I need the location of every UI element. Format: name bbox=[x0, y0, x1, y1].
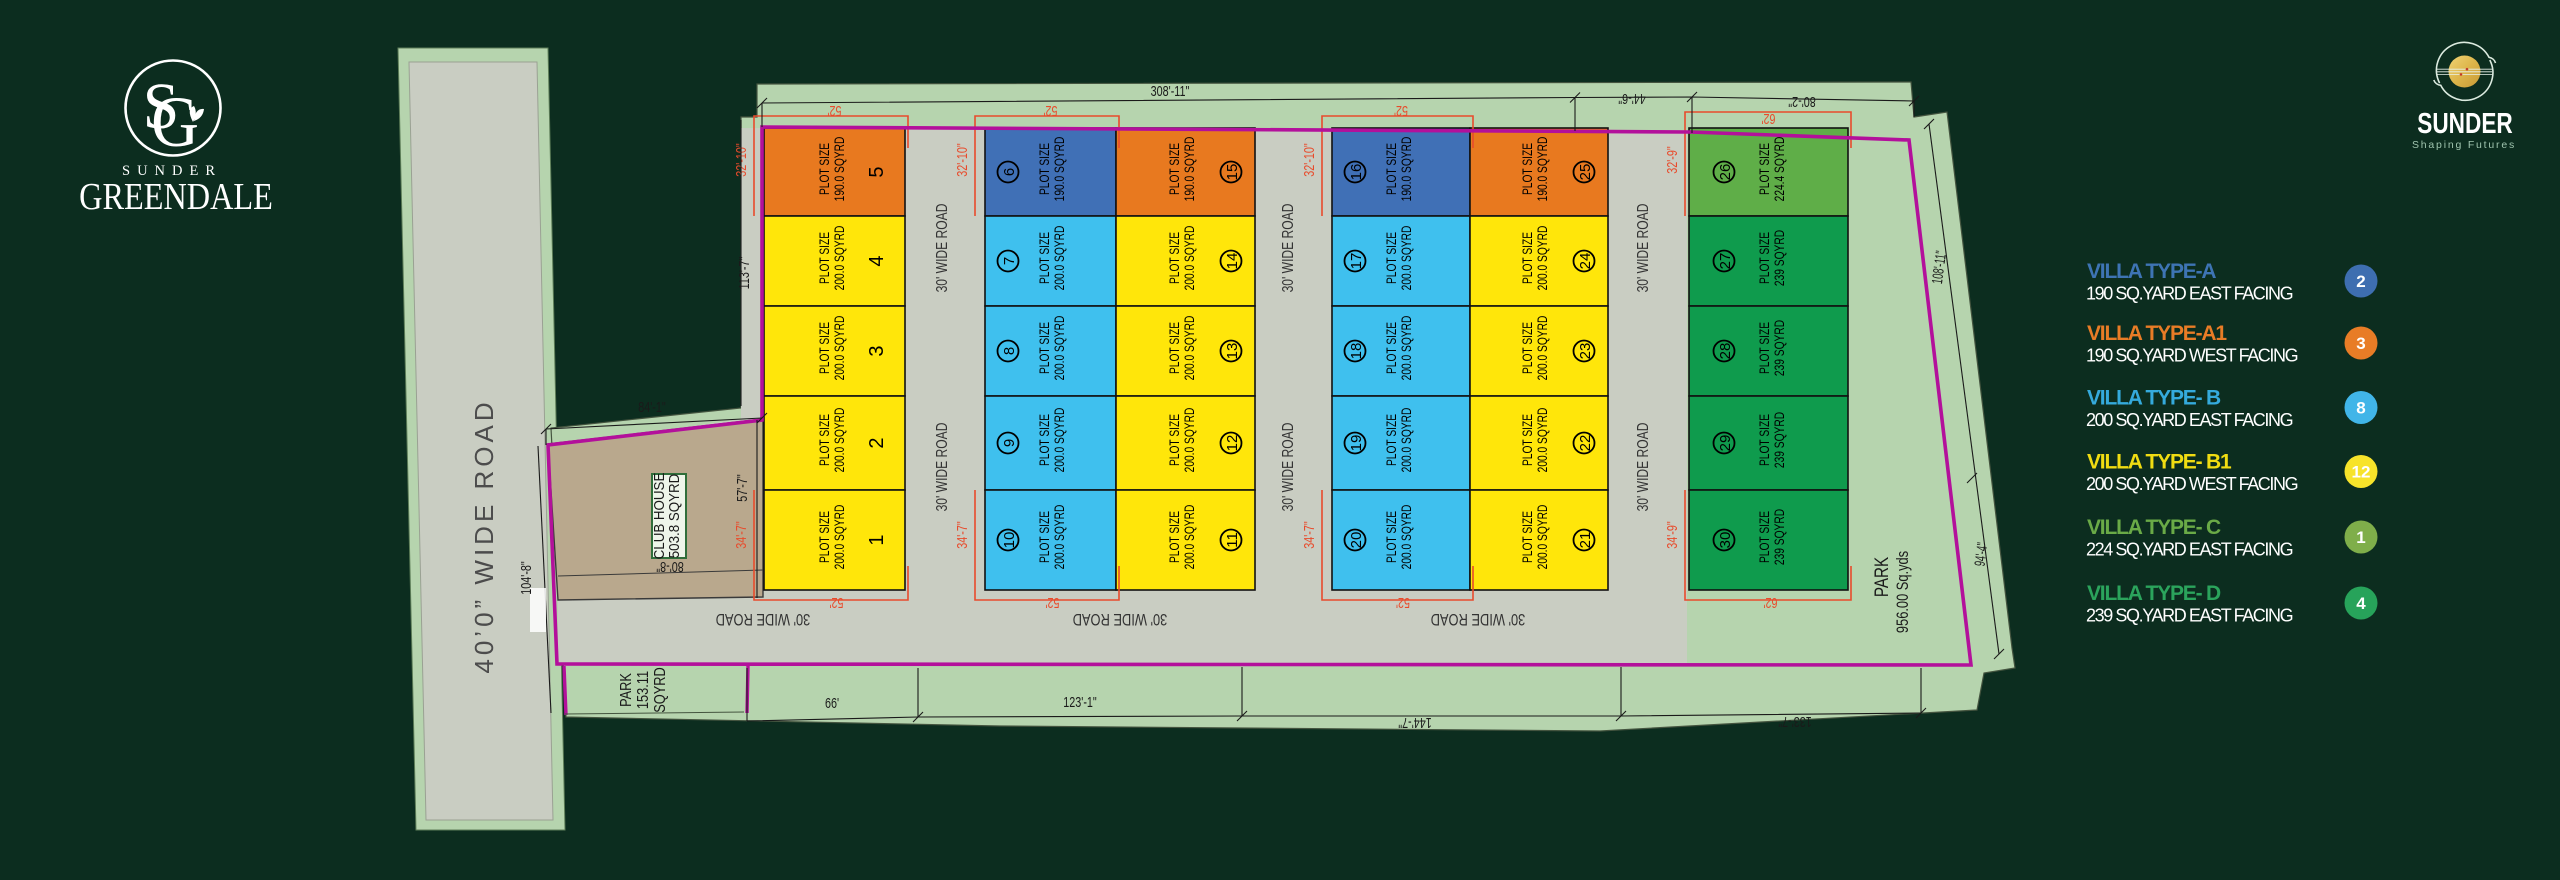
svg-text:239 SQYRD: 239 SQYRD bbox=[1771, 412, 1787, 468]
svg-text:9: 9 bbox=[1001, 439, 1018, 447]
svg-text:13: 13 bbox=[1224, 343, 1241, 360]
svg-text:200.0 SQYRD: 200.0 SQYRD bbox=[1051, 408, 1067, 473]
svg-text:200 SQ.YARD EAST FACING: 200 SQ.YARD EAST FACING bbox=[2086, 410, 2293, 430]
svg-text:80'-2": 80'-2" bbox=[1788, 94, 1816, 111]
svg-text:PLOT SIZE: PLOT SIZE bbox=[1166, 232, 1182, 284]
svg-text:PLOT SIZE: PLOT SIZE bbox=[816, 322, 832, 374]
svg-text:PLOT SIZE: PLOT SIZE bbox=[1166, 143, 1182, 195]
svg-text:PLOT SIZE: PLOT SIZE bbox=[1036, 322, 1052, 374]
svg-text:PLOT SIZE: PLOT SIZE bbox=[1383, 511, 1399, 563]
svg-text:15: 15 bbox=[1224, 164, 1241, 181]
svg-text:52': 52' bbox=[1043, 103, 1057, 120]
svg-text:25: 25 bbox=[1577, 164, 1594, 181]
svg-text:8: 8 bbox=[1001, 347, 1018, 355]
svg-text:30: 30 bbox=[1717, 532, 1734, 549]
svg-text:PLOT SIZE: PLOT SIZE bbox=[816, 143, 832, 195]
svg-text:20: 20 bbox=[1348, 532, 1365, 549]
svg-text:17: 17 bbox=[1348, 253, 1365, 270]
svg-text:224 SQ.YARD EAST FACING: 224 SQ.YARD EAST FACING bbox=[2086, 540, 2293, 560]
svg-text:30' WIDE ROAD: 30' WIDE ROAD bbox=[1634, 204, 1652, 293]
svg-text:239 SQ.YARD EAST FACING: 239 SQ.YARD EAST FACING bbox=[2086, 606, 2293, 626]
svg-text:PLOT SIZE: PLOT SIZE bbox=[1519, 232, 1535, 284]
svg-text:94'-4": 94'-4" bbox=[1971, 542, 1991, 568]
svg-text:34'-7": 34'-7" bbox=[953, 521, 970, 549]
svg-text:153.11: 153.11 bbox=[635, 671, 653, 709]
svg-text:190.0 SQYRD: 190.0 SQYRD bbox=[831, 137, 847, 202]
svg-text:200.0 SQYRD: 200.0 SQYRD bbox=[1534, 316, 1550, 381]
svg-text:200.0 SQYRD: 200.0 SQYRD bbox=[1181, 316, 1197, 381]
svg-text:24: 24 bbox=[1577, 253, 1594, 270]
svg-text:30' WIDE ROAD: 30' WIDE ROAD bbox=[1073, 610, 1168, 628]
svg-text:308'-11": 308'-11" bbox=[1151, 82, 1190, 99]
svg-text:PLOT SIZE: PLOT SIZE bbox=[1036, 232, 1052, 284]
svg-text:26: 26 bbox=[1717, 164, 1734, 181]
svg-text:21: 21 bbox=[1577, 532, 1594, 549]
svg-text:32'-10": 32'-10" bbox=[953, 143, 970, 177]
svg-text:200.0 SQYRD: 200.0 SQYRD bbox=[1398, 226, 1414, 291]
svg-text:200.0 SQYRD: 200.0 SQYRD bbox=[1398, 316, 1414, 381]
svg-text:PLOT SIZE: PLOT SIZE bbox=[1036, 511, 1052, 563]
svg-text:34'-7": 34'-7" bbox=[1300, 521, 1317, 549]
svg-text:28: 28 bbox=[1717, 343, 1734, 360]
svg-text:200.0 SQYRD: 200.0 SQYRD bbox=[831, 505, 847, 570]
svg-text:1: 1 bbox=[2356, 528, 2365, 547]
svg-text:123'-1": 123'-1" bbox=[1063, 693, 1097, 710]
svg-text:200.0 SQYRD: 200.0 SQYRD bbox=[831, 226, 847, 291]
svg-text:27: 27 bbox=[1717, 253, 1734, 270]
svg-text:2: 2 bbox=[2356, 272, 2365, 291]
svg-text:11: 11 bbox=[1224, 532, 1241, 548]
svg-text:200.0 SQYRD: 200.0 SQYRD bbox=[1051, 505, 1067, 570]
svg-text:40’0” WIDE ROAD: 40’0” WIDE ROAD bbox=[469, 398, 499, 673]
svg-text:22: 22 bbox=[1577, 435, 1594, 452]
svg-text:PARK: PARK bbox=[1870, 556, 1892, 597]
svg-text:34'-7": 34'-7" bbox=[732, 521, 749, 549]
svg-text:VILLA TYPE- B1: VILLA TYPE- B1 bbox=[2087, 451, 2232, 474]
svg-text:PLOT SIZE: PLOT SIZE bbox=[1383, 414, 1399, 466]
svg-text:PLOT SIZE: PLOT SIZE bbox=[816, 232, 832, 284]
svg-text:44'-6": 44'-6" bbox=[1618, 91, 1646, 108]
svg-text:190.0 SQYRD: 190.0 SQYRD bbox=[1181, 137, 1197, 202]
svg-text:190.0 SQYRD: 190.0 SQYRD bbox=[1534, 137, 1550, 202]
svg-text:SQYRD: SQYRD bbox=[652, 667, 670, 712]
svg-text:144'-7": 144'-7" bbox=[1398, 715, 1432, 732]
svg-text:200.0 SQYRD: 200.0 SQYRD bbox=[831, 316, 847, 381]
svg-text:PLOT SIZE: PLOT SIZE bbox=[1519, 511, 1535, 563]
svg-text:14: 14 bbox=[1224, 253, 1241, 270]
svg-text:200.0 SQYRD: 200.0 SQYRD bbox=[1534, 505, 1550, 570]
svg-text:GREENDALE: GREENDALE bbox=[79, 176, 273, 218]
svg-text:PLOT SIZE: PLOT SIZE bbox=[1166, 414, 1182, 466]
svg-text:VILLA TYPE- B: VILLA TYPE- B bbox=[2087, 387, 2221, 410]
svg-text:19: 19 bbox=[1348, 435, 1365, 452]
svg-text:VILLA TYPE- D: VILLA TYPE- D bbox=[2087, 582, 2221, 605]
svg-text:VILLA TYPE- C: VILLA TYPE- C bbox=[2087, 516, 2221, 539]
svg-text:PLOT SIZE: PLOT SIZE bbox=[1756, 232, 1772, 284]
svg-text:PLOT SIZE: PLOT SIZE bbox=[1519, 143, 1535, 195]
svg-text:VILLA TYPE-A: VILLA TYPE-A bbox=[2087, 260, 2216, 283]
svg-text:30' WIDE ROAD: 30' WIDE ROAD bbox=[1634, 423, 1652, 512]
svg-text:52': 52' bbox=[1045, 595, 1059, 612]
svg-text:32'-10": 32'-10" bbox=[1300, 143, 1317, 177]
svg-text:3: 3 bbox=[2356, 334, 2365, 353]
svg-text:PLOT SIZE: PLOT SIZE bbox=[1036, 414, 1052, 466]
svg-text:G: G bbox=[151, 81, 199, 161]
svg-text:52': 52' bbox=[829, 595, 843, 612]
svg-text:239 SQYRD: 239 SQYRD bbox=[1771, 509, 1787, 565]
svg-text:200.0 SQYRD: 200.0 SQYRD bbox=[1534, 408, 1550, 473]
svg-text:190.0 SQYRD: 190.0 SQYRD bbox=[1051, 137, 1067, 202]
svg-text:1: 1 bbox=[866, 534, 888, 545]
svg-text:62': 62' bbox=[1761, 111, 1775, 128]
svg-text:PLOT SIZE: PLOT SIZE bbox=[1166, 511, 1182, 563]
svg-text:66': 66' bbox=[825, 694, 839, 711]
svg-text:190 SQ.YARD WEST FACING: 190 SQ.YARD WEST FACING bbox=[2086, 346, 2298, 366]
svg-text:3: 3 bbox=[866, 345, 888, 356]
svg-text:VILLA TYPE-A1: VILLA TYPE-A1 bbox=[2087, 322, 2227, 345]
svg-text:224.4 SQYRD: 224.4 SQYRD bbox=[1771, 137, 1787, 202]
svg-text:30' WIDE ROAD: 30' WIDE ROAD bbox=[933, 204, 951, 293]
svg-text:PLOT SIZE: PLOT SIZE bbox=[1756, 414, 1772, 466]
svg-text:133'-7": 133'-7" bbox=[1778, 714, 1812, 731]
svg-text:503.8 SQYRD: 503.8 SQYRD bbox=[665, 474, 682, 558]
svg-text:200.0 SQYRD: 200.0 SQYRD bbox=[1398, 408, 1414, 473]
svg-text:2: 2 bbox=[866, 437, 888, 448]
svg-text:956.00 Sq.yds: 956.00 Sq.yds bbox=[1895, 551, 1913, 633]
svg-text:104'-8": 104'-8" bbox=[517, 561, 534, 595]
svg-text:239 SQYRD: 239 SQYRD bbox=[1771, 230, 1787, 286]
svg-text:10: 10 bbox=[1001, 532, 1018, 549]
svg-text:PLOT SIZE: PLOT SIZE bbox=[1519, 414, 1535, 466]
svg-text:PLOT SIZE: PLOT SIZE bbox=[1519, 322, 1535, 374]
svg-text:12: 12 bbox=[2352, 463, 2371, 482]
svg-text:84'-1": 84'-1" bbox=[638, 398, 666, 415]
svg-text:PLOT SIZE: PLOT SIZE bbox=[1383, 232, 1399, 284]
svg-text:52': 52' bbox=[1396, 595, 1410, 612]
svg-text:PLOT SIZE: PLOT SIZE bbox=[816, 511, 832, 563]
svg-text:PLOT SIZE: PLOT SIZE bbox=[1166, 322, 1182, 374]
svg-text:PLOT SIZE: PLOT SIZE bbox=[1036, 143, 1052, 195]
svg-text:12: 12 bbox=[1224, 435, 1241, 452]
svg-text:18: 18 bbox=[1348, 343, 1365, 360]
svg-text:PLOT SIZE: PLOT SIZE bbox=[1756, 511, 1772, 563]
svg-text:200 SQ.YARD WEST FACING: 200 SQ.YARD WEST FACING bbox=[2086, 474, 2298, 494]
svg-text:4: 4 bbox=[2356, 594, 2366, 613]
svg-text:4: 4 bbox=[866, 255, 888, 266]
svg-text:6: 6 bbox=[1001, 168, 1018, 176]
svg-text:PLOT SIZE: PLOT SIZE bbox=[1383, 143, 1399, 195]
svg-text:32'-9": 32'-9" bbox=[1663, 146, 1680, 174]
svg-text:30' WIDE ROAD: 30' WIDE ROAD bbox=[716, 610, 811, 628]
svg-text:PLOT SIZE: PLOT SIZE bbox=[1756, 322, 1772, 374]
svg-text:190 SQ.YARD EAST FACING: 190 SQ.YARD EAST FACING bbox=[2086, 284, 2293, 304]
svg-text:30' WIDE ROAD: 30' WIDE ROAD bbox=[933, 423, 951, 512]
svg-text:5: 5 bbox=[866, 166, 888, 177]
svg-text:200.0 SQYRD: 200.0 SQYRD bbox=[1181, 408, 1197, 473]
svg-text:57'-7": 57'-7" bbox=[733, 474, 750, 502]
svg-text:PLOT SIZE: PLOT SIZE bbox=[1756, 143, 1772, 195]
svg-text:8: 8 bbox=[2356, 399, 2365, 418]
svg-text:200.0 SQYRD: 200.0 SQYRD bbox=[1051, 316, 1067, 381]
svg-text:30' WIDE ROAD: 30' WIDE ROAD bbox=[1431, 610, 1526, 628]
svg-text:200.0 SQYRD: 200.0 SQYRD bbox=[1398, 505, 1414, 570]
svg-text:80'-8": 80'-8" bbox=[656, 559, 684, 576]
svg-text:239 SQYRD: 239 SQYRD bbox=[1771, 320, 1787, 376]
svg-text:190.0 SQYRD: 190.0 SQYRD bbox=[1398, 137, 1414, 202]
svg-text:30' WIDE ROAD: 30' WIDE ROAD bbox=[1279, 423, 1297, 512]
svg-text:7: 7 bbox=[1001, 257, 1018, 265]
svg-text:23: 23 bbox=[1577, 343, 1594, 360]
svg-text:Shaping Futures: Shaping Futures bbox=[2412, 139, 2516, 151]
svg-text:SUNDER: SUNDER bbox=[2417, 106, 2513, 139]
svg-text:52': 52' bbox=[1394, 103, 1408, 120]
svg-text:113'-7": 113'-7" bbox=[735, 256, 752, 289]
svg-text:200.0 SQYRD: 200.0 SQYRD bbox=[831, 408, 847, 473]
svg-text:62': 62' bbox=[1763, 595, 1777, 612]
svg-text:PARK: PARK bbox=[618, 673, 636, 707]
svg-text:30' WIDE ROAD: 30' WIDE ROAD bbox=[1279, 204, 1297, 293]
svg-text:29: 29 bbox=[1717, 435, 1734, 452]
svg-text:16: 16 bbox=[1348, 164, 1365, 181]
svg-text:PLOT SIZE: PLOT SIZE bbox=[816, 414, 832, 466]
svg-text:200.0 SQYRD: 200.0 SQYRD bbox=[1051, 226, 1067, 291]
svg-text:52': 52' bbox=[827, 103, 841, 120]
svg-text:200.0 SQYRD: 200.0 SQYRD bbox=[1534, 226, 1550, 291]
svg-text:200.0 SQYRD: 200.0 SQYRD bbox=[1181, 505, 1197, 570]
svg-text:34'-9": 34'-9" bbox=[1663, 521, 1680, 549]
svg-text:PLOT SIZE: PLOT SIZE bbox=[1383, 322, 1399, 374]
svg-text:200.0 SQYRD: 200.0 SQYRD bbox=[1181, 226, 1197, 291]
